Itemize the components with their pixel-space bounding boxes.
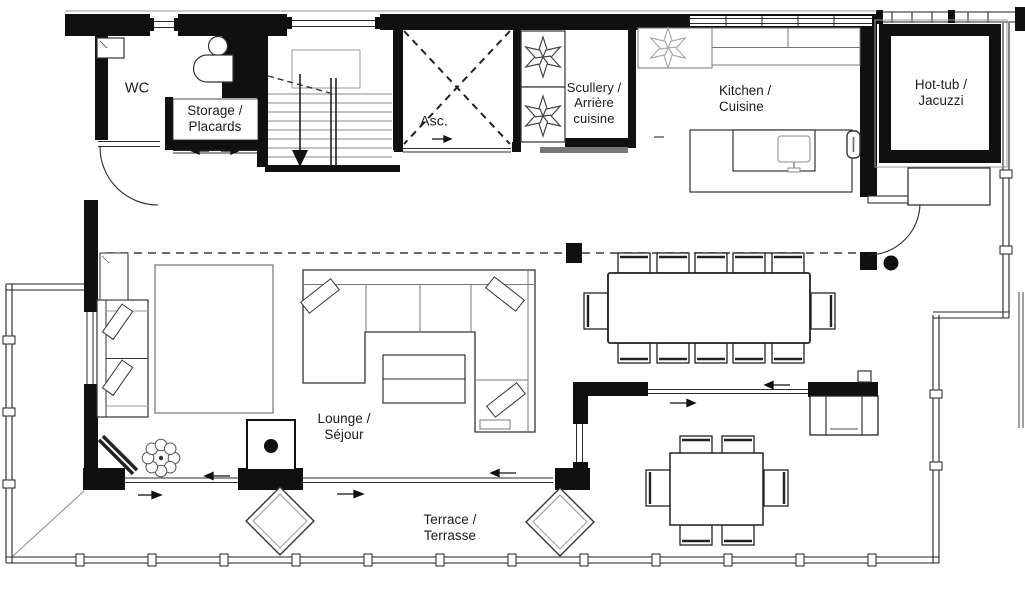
- outdoor-chair: [646, 470, 670, 506]
- dining-chair: [657, 253, 689, 273]
- dining-chair: [695, 253, 727, 273]
- room-label-storage: Storage / Placards: [187, 103, 242, 135]
- room-label-wc: WC: [125, 80, 149, 97]
- coffee-table: [383, 355, 465, 403]
- dining-chair: [772, 253, 804, 273]
- bench-diagonal: [101, 438, 135, 472]
- kitchen-island: [690, 130, 852, 192]
- room-label-hot-tub: Hot-tub / Jacuzzi: [915, 77, 967, 109]
- dining-chair: [695, 343, 727, 363]
- floor-plan: WC Storage / Placards Asc. Scullery / Ar…: [0, 0, 1025, 601]
- room-label-lounge: Lounge / Séjour: [318, 411, 371, 443]
- room-label-elevator: Asc.: [420, 113, 448, 130]
- room-label-kitchen: Kitchen / Cuisine: [719, 83, 771, 115]
- rug: [155, 265, 273, 413]
- column-dot: [884, 256, 899, 271]
- wc-fixtures: [97, 37, 233, 83]
- outdoor-chair: [680, 525, 712, 545]
- wood-stove-icon: [247, 420, 295, 470]
- outdoor-table: [670, 453, 763, 525]
- toilet-bowl: [194, 55, 234, 82]
- kitchen-counter: [712, 28, 860, 65]
- outdoor-chair: [722, 525, 754, 545]
- dining-table: [608, 273, 810, 343]
- dining-chair: [657, 343, 689, 363]
- dining-chair: [772, 343, 804, 363]
- dining-chair: [618, 253, 650, 273]
- dining-chair: [811, 293, 835, 329]
- dining-chair: [733, 253, 765, 273]
- hot-tub: [875, 20, 1007, 271]
- dining-chair: [618, 343, 650, 363]
- room-label-scullery: Scullery / Arrière cuisine: [567, 80, 621, 126]
- ottoman-diamond: [246, 487, 314, 555]
- terrace-furniture: [246, 371, 878, 556]
- ottoman-diamond: [526, 488, 594, 556]
- sectional-sofa: [301, 270, 535, 432]
- sink: [778, 136, 810, 162]
- dining-furniture: [584, 253, 835, 363]
- room-label-terrace: Terrace / Terrasse: [424, 512, 477, 544]
- bench: [908, 168, 990, 205]
- floorplan-drawing: [0, 0, 1025, 601]
- dining-chair: [584, 293, 608, 329]
- bbq-grill: [810, 371, 878, 435]
- washbasin: [97, 38, 124, 58]
- plant-icon: [142, 439, 180, 477]
- wall-sofa: [97, 300, 148, 417]
- toilet-cistern: [209, 37, 228, 56]
- dining-chair: [733, 343, 765, 363]
- laundry-appliances: [521, 31, 565, 142]
- lounge-furniture: [97, 265, 535, 477]
- outdoor-chair: [764, 470, 788, 506]
- staircase: [268, 50, 392, 167]
- radiator: [100, 253, 128, 300]
